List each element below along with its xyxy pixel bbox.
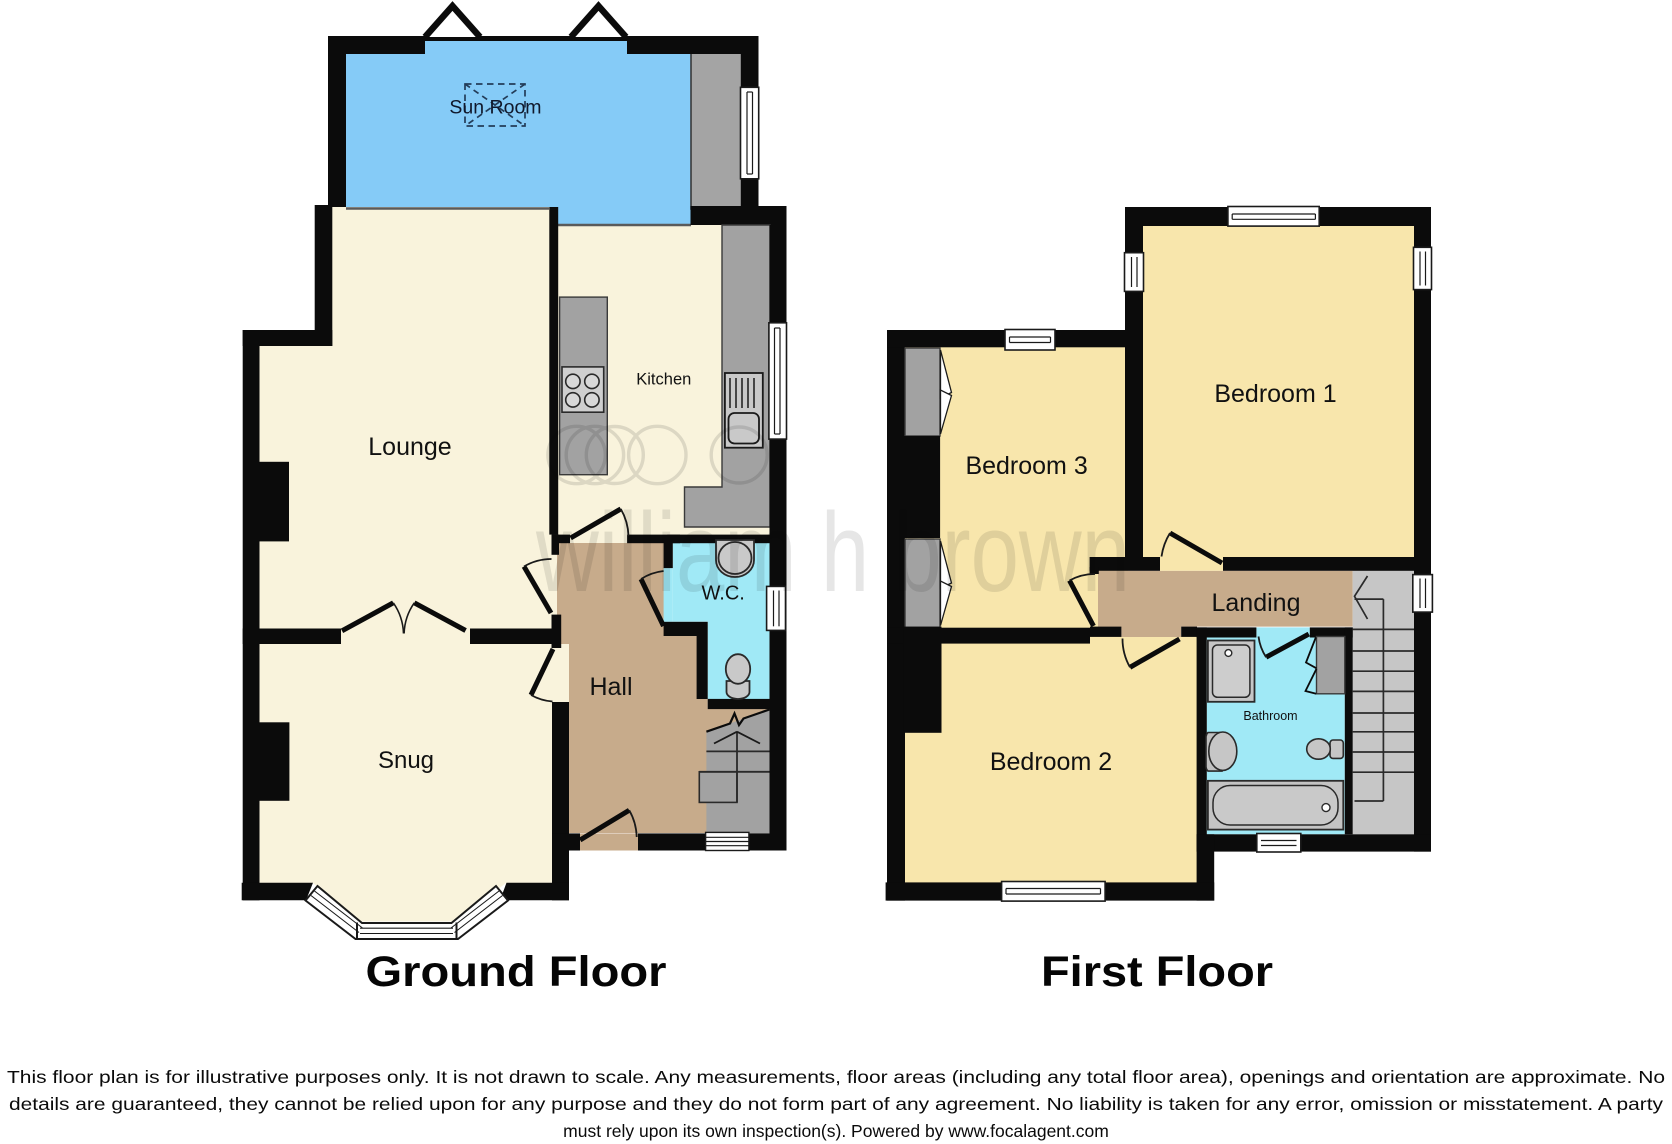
svg-text:This floor plan is for illustr: This floor plan is for illustrative purp… (7, 1067, 1665, 1087)
svg-text:Kitchen: Kitchen (636, 370, 691, 388)
svg-text:Bathroom: Bathroom (1243, 709, 1297, 723)
svg-text:Bedroom 3: Bedroom 3 (965, 452, 1087, 480)
svg-text:details are guaranteed, they c: details are guaranteed, they cannot be r… (9, 1094, 1663, 1114)
svg-text:Landing: Landing (1212, 589, 1301, 617)
svg-text:Sun Room: Sun Room (449, 97, 541, 119)
svg-text:Snug: Snug (378, 747, 434, 774)
svg-text:william h brown: william h brown (535, 490, 1130, 615)
svg-text:must rely upon its own inspect: must rely upon its own inspection(s). Po… (563, 1121, 1109, 1141)
svg-text:Lounge: Lounge (368, 433, 451, 461)
svg-text:Hall: Hall (589, 673, 632, 701)
svg-text:Bedroom 2: Bedroom 2 (990, 748, 1112, 776)
svg-text:First Floor: First Floor (1041, 948, 1273, 996)
svg-text:Ground Floor: Ground Floor (366, 948, 667, 996)
svg-text:Bedroom 1: Bedroom 1 (1214, 380, 1336, 408)
